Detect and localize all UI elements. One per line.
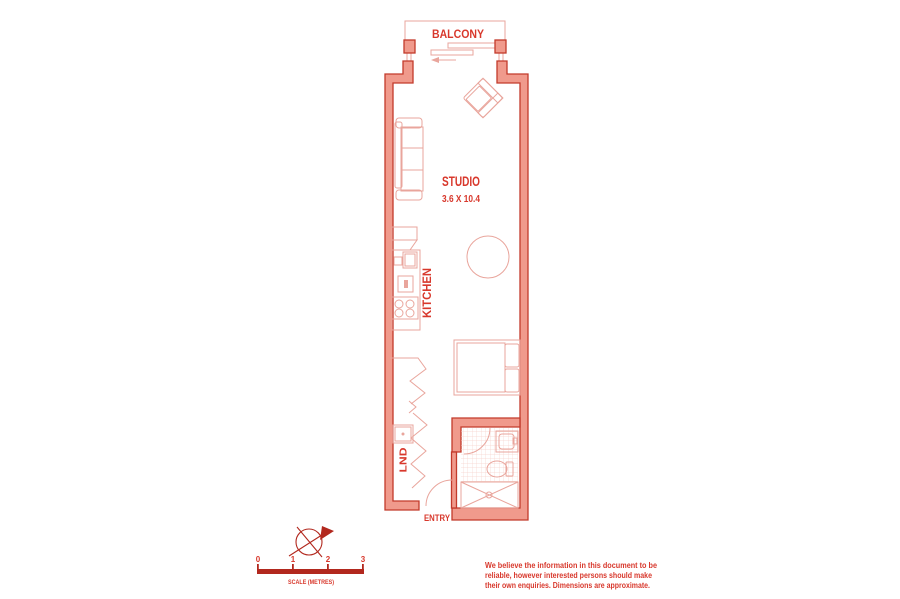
compass-rose-icon [289,526,334,557]
oven-handle [404,280,408,288]
scale-tick [257,564,259,570]
scale-tick-label: 3 [361,555,366,564]
kitchen-fixtures [392,227,420,330]
scale-tick [327,564,329,570]
laundry-bifold-door [411,413,427,488]
entry-door-swing [426,480,452,506]
scale-tick-label: 0 [256,555,261,564]
balcony-label: BALCONY [432,27,484,41]
pillow [505,369,519,392]
sliding-door-panel [448,43,496,48]
kitchen-counter [392,250,420,330]
burner [406,309,414,317]
north-arrow-icon [320,526,334,540]
disclaimer-line: their own enquiries. Dimensions are appr… [485,581,650,590]
scale-caption: SCALE (METRES) [288,579,334,586]
slide-direction-arrow-icon [431,57,439,63]
disclaimer-line: We believe the information in this docum… [485,561,658,570]
floor-plan-canvas: BALCONY STUDIO 3.6 X 10.4 KITCHEN LND EN… [0,0,900,599]
studio-label: STUDIO [442,174,480,189]
floor-plan-page: BALCONY STUDIO 3.6 X 10.4 KITCHEN LND EN… [0,0,900,599]
burner [406,300,414,308]
balcony-post [495,40,506,53]
washing-machine [393,425,413,443]
wall-bathroom-left [452,452,457,508]
fridge-door-swing [392,240,417,250]
pillow [505,344,519,367]
scale-tick [362,564,364,570]
sofa [395,118,423,200]
entry-label: ENTRY [424,513,450,523]
fridge [392,227,417,240]
disclaimer-line: reliable, however interested persons sho… [485,571,652,580]
disclaimer-text: We believe the information in this docum… [485,561,658,590]
shower-cross-lines [461,482,518,508]
scale-tick-label: 2 [326,555,331,564]
sink-basin [405,254,415,266]
kitchen-label: KITCHEN [422,268,434,318]
laundry-label: LND [398,447,410,472]
dining-table [467,236,509,278]
bed [454,340,520,395]
scale-bar-line [257,569,364,574]
studio-dimensions: 3.6 X 10.4 [442,194,480,205]
burner [395,309,403,317]
burner [395,300,403,308]
wardrobe-bifold-door [390,358,426,404]
bathroom [461,428,518,508]
scale-tick [292,564,294,570]
sliding-door-panel [431,50,473,55]
compass-cross-lines [289,527,325,557]
window-glazing [407,53,503,75]
scale-tick-label: 1 [291,555,296,564]
balcony-post [404,40,415,53]
tap [394,257,402,265]
bed-sheet [457,343,505,392]
scale-bar: 0 1 2 3 SCALE (METRES) [256,555,366,586]
armchair [463,78,503,118]
